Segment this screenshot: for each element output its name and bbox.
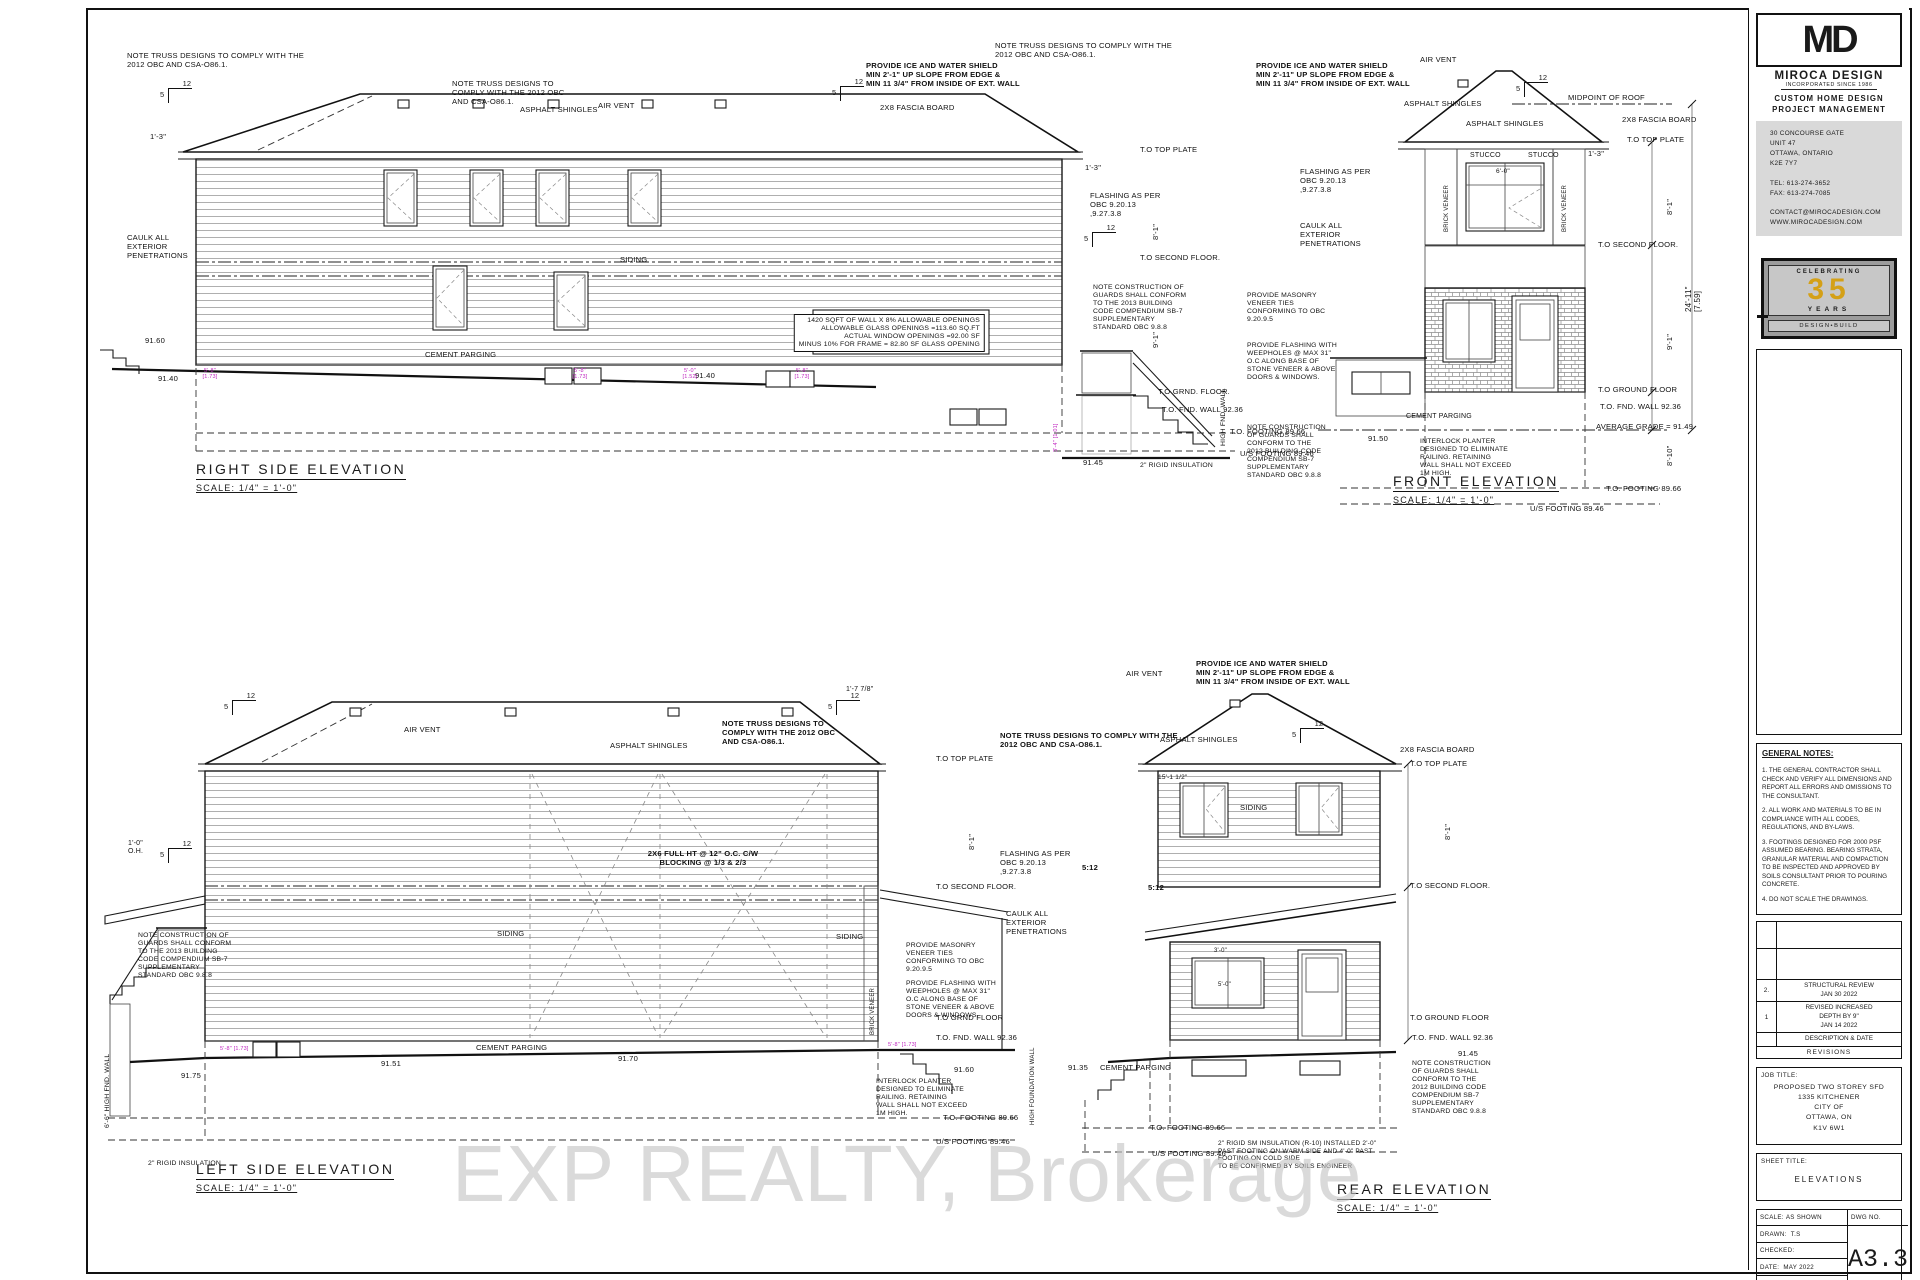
annotation-text: 91.35	[1068, 1064, 1088, 1073]
roof-slope-mark: 125	[840, 86, 864, 103]
annotation-text: T.O. FND. WALL 92.36	[936, 1034, 1017, 1043]
annotation-text: ASPHALT SHINGLES	[520, 106, 598, 115]
exp-realty-watermark: EXP REALTY, Brokerage	[452, 1128, 1362, 1220]
annotation-text: 91.70	[618, 1055, 638, 1064]
annotation-text: NOTE TRUSS DESIGNS TO COMPLY WITH THE 20…	[722, 720, 835, 747]
annotation-text: 5'-8" [1.73]	[888, 1042, 917, 1048]
annotation-text: CEMENT PARGING	[476, 1044, 547, 1053]
list-line: OTTAWA, ON	[1761, 1113, 1897, 1123]
company-address: 30 CONCOURSE GATEUNIT 47OTTAWA, ONTARIOK…	[1756, 121, 1902, 236]
annotation-text: 9'-1"	[1152, 332, 1161, 348]
annotation-text: SIDING	[836, 933, 863, 942]
annotation-text: 8'-1"	[968, 834, 977, 850]
slope-rise: 5	[224, 702, 228, 711]
list-line	[1770, 198, 1898, 208]
annotation-text: 91.50	[1368, 435, 1388, 444]
annotation-text: T.O SECOND FLOOR.	[1410, 882, 1490, 891]
slope-run: 12	[1315, 719, 1323, 728]
annotation-text: NOTE CONSTRUCTION OF GUARDS SHALL CONFOR…	[1412, 1060, 1491, 1116]
revision-number: 1	[1757, 1002, 1777, 1032]
annotation-text: NOTE TRUSS DESIGNS TO COMPLY WITH THE 20…	[1000, 732, 1178, 750]
slope-rise: 5	[1292, 730, 1296, 739]
list-line: WWW.MIROCADESIGN.COM	[1770, 218, 1898, 228]
annotation-text: CEMENT PARGING	[1406, 413, 1472, 421]
annotation-text: 91.40	[158, 375, 178, 384]
service-line: PROJECT MANAGEMENT	[1749, 105, 1909, 116]
annotation-text: T.O GRND FLOOR	[936, 1014, 1003, 1023]
slope-run: 12	[1539, 73, 1547, 82]
annotation-text: PROVIDE ICE AND WATER SHIELD MIN 2'-1" U…	[866, 62, 1020, 89]
drawing-scale: SCALE: 1/4" = 1'-0"	[196, 483, 406, 493]
annotation-text: 1'-3"	[1085, 164, 1101, 173]
annotation-text: 9'-1"	[1666, 334, 1675, 350]
annotation-text: PROVIDE FLASHING WITH WEEPHOLES @ MAX 31…	[1247, 342, 1337, 382]
annotation-text: NOTE CONSTRUCTION OF GUARDS SHALL CONFOR…	[138, 932, 231, 980]
annotation-text: NOTE CONSTRUCTION OF GUARDS SHALL CONFOR…	[1093, 284, 1186, 332]
annotation-text: T.O TOP PLATE	[1627, 136, 1684, 145]
title-block: MD MIROCA DESIGN INCORPORATED SINCE 1986…	[1748, 8, 1909, 1270]
annotation-text: 15'-1 1/2"	[1158, 774, 1187, 782]
drawing-scale: SCALE: 1/4" = 1'-0"	[196, 1183, 394, 1193]
annotation-text: 3'-4" [1.01]	[1053, 423, 1059, 452]
revision-desc-date-label: DESCRIPTION & DATE	[1777, 1033, 1901, 1046]
drawing-sheet: EXP REALTY, Brokerage NOTE TRUSS DESIGNS…	[0, 0, 1920, 1280]
annotation-text: 3'-0"	[1214, 948, 1227, 955]
annotation-text: 8'-1"	[1152, 224, 1161, 240]
annotation-text: 1'-3"	[1588, 150, 1604, 159]
list-line	[1770, 169, 1898, 179]
annotation-text: AIR VENT	[404, 726, 441, 735]
slope-rise: 5	[1516, 84, 1520, 93]
title-right-side-elevation: RIGHT SIDE ELEVATION SCALE: 1/4" = 1'-0"	[196, 461, 406, 493]
annotation-text: SIDING	[497, 930, 524, 939]
annotation-text: T.O. FND. WALL 92.36	[1162, 406, 1243, 415]
annotation-text: 8'-10"	[1666, 445, 1675, 466]
annotation-text: NOTE TRUSS DESIGNS TO COMPLY WITH THE 20…	[995, 42, 1172, 60]
revision-row: 1 REVISED INCREASED DEPTH BY 9" JAN 14 2…	[1757, 1002, 1901, 1033]
annotation-text: FLASHING AS PER OBC 9.20.13 ,9.27.3.8	[1090, 192, 1161, 219]
annotation-text: 91.40	[695, 372, 715, 381]
annotation-text: BRICK VENEER	[1562, 185, 1569, 232]
roof-slope-mark: 125	[232, 700, 256, 717]
annotation-text: 1'-0" O.H.	[128, 840, 143, 857]
annotation-text: T.O. FND. WALL 92.36	[1412, 1034, 1493, 1043]
annotation-text: 91.60	[145, 337, 165, 346]
annotation-text: CAULK ALL EXTERIOR PENETRATIONS	[127, 234, 188, 261]
annotation-text: 5'-0" [1.52]	[683, 368, 698, 381]
revision-header-row: DESCRIPTION & DATE	[1757, 1033, 1901, 1047]
sheet-title-label: SHEET TITLE:	[1761, 1158, 1897, 1165]
annotation-text: T.O SECOND FLOOR.	[1140, 254, 1220, 263]
title-left-side-elevation: LEFT SIDE ELEVATION SCALE: 1/4" = 1'-0"	[196, 1161, 394, 1193]
sheet-title-value: ELEVATIONS	[1761, 1175, 1897, 1184]
annotation-text: SIDING	[1240, 804, 1267, 813]
list-line: TEL: 613-274-3652	[1770, 179, 1898, 189]
title-front-elevation: FRONT ELEVATION SCALE: 1/4" = 1'-0"	[1393, 473, 1559, 505]
roof-slope-mark: 125	[1092, 232, 1116, 249]
annotation-text: 2X8 FASCIA BOARD	[1400, 746, 1475, 755]
slope-run: 12	[1107, 223, 1115, 232]
date-value: MAY 2022	[1783, 1264, 1814, 1271]
slope-run: 12	[183, 839, 191, 848]
annotation-text: T.O TOP PLATE	[936, 755, 993, 764]
annotation-text: 91.75	[181, 1072, 201, 1081]
roof-slope-mark: 125	[1524, 82, 1548, 99]
job-title-lines: PROPOSED TWO STOREY SFD1335 KITCHENERCIT…	[1761, 1083, 1897, 1134]
annotation-text: T.O TOP PLATE	[1140, 146, 1197, 155]
annotation-text: 1'-3"	[150, 133, 166, 142]
annotation-text: HIGH FOUNDATION WALL	[1030, 1047, 1037, 1125]
annotation-text: 8'-1"	[1666, 199, 1675, 215]
annotation-text: AVERAGE GRADE = 91.49	[1596, 423, 1693, 432]
revision-row: 2. STRUCTURAL REVIEW JAN 30 2022	[1757, 980, 1901, 1002]
annotation-text: T.O SECOND FLOOR.	[1598, 241, 1678, 250]
annotation-text: 24'-11" [7.59]	[1684, 286, 1703, 312]
annotation-text: PROVIDE MASONRY VENEER TIES CONFORMING T…	[1247, 292, 1325, 324]
slope-run: 12	[855, 77, 863, 86]
slope-rise: 5	[160, 850, 164, 859]
annotation-text: T.O SECOND FLOOR.	[936, 883, 1016, 892]
annotation-text: 91.45	[1458, 1050, 1478, 1059]
annotation-text: NOTE TRUSS DESIGNS TO COMPLY WITH THE 20…	[452, 80, 564, 107]
list-line: UNIT 47	[1770, 139, 1898, 149]
annotation-text: ASPHALT SHINGLES	[1160, 736, 1238, 745]
revision-row-empty	[1757, 949, 1901, 980]
annotation-text: 2X8 FASCIA BOARD	[1622, 116, 1697, 125]
drawing-scale: SCALE: 1/4" = 1'-0"	[1393, 495, 1559, 505]
annotation-text: BRICK VENEER	[1444, 185, 1451, 232]
roof-slope-mark: 125	[1300, 728, 1324, 745]
roof-slope-mark: 125	[168, 88, 192, 105]
annotation-text: 91.51	[381, 1060, 401, 1069]
annotation-text: T.O. FOOTING 89.66	[943, 1114, 1018, 1123]
company-services: CUSTOM HOME DESIGN PROJECT MANAGEMENT	[1749, 94, 1909, 115]
drawn-label: DRAWN:	[1760, 1231, 1787, 1238]
roof-slope-mark: 125	[168, 848, 192, 865]
annotation-text: 5'-8" [1.73]	[203, 368, 218, 381]
annotation-text: 6'-6" HIGH FND. WALL	[104, 1054, 112, 1128]
drawn-value: T.S	[1791, 1231, 1801, 1238]
date-cell: DATE: MAY 2022	[1757, 1259, 1847, 1276]
annotation-text: AIR VENT	[1126, 670, 1163, 679]
annotation-text: CEMENT PARGING	[425, 351, 496, 360]
list-line: 1335 KITCHENER	[1761, 1093, 1897, 1103]
list-line: 30 CONCOURSE GATE	[1770, 129, 1898, 139]
annotation-text: ASPHALT SHINGLES	[1466, 120, 1544, 129]
annotation-text: 5:12	[1148, 884, 1164, 893]
annotation-text: 2" RIGID INSULATION	[1140, 462, 1213, 470]
date-label: DATE:	[1760, 1264, 1779, 1271]
revision-number: 2.	[1757, 980, 1777, 1001]
badge-design-build: DESIGN•BUILD	[1768, 320, 1890, 332]
general-notes-list: 1. THE GENERAL CONTRACTOR SHALL CHECK AN…	[1762, 767, 1897, 904]
annotation-text: AIR VENT	[598, 102, 635, 111]
checked-cell: CHECKED:	[1757, 1243, 1847, 1260]
revisions-table: 2. STRUCTURAL REVIEW JAN 30 2022 1 REVIS…	[1756, 921, 1902, 1059]
annotation-layer: NOTE TRUSS DESIGNS TO COMPLY WITH THE 20…	[0, 0, 1920, 1280]
annotation-text: STUCCO	[1470, 152, 1501, 160]
sheet-title-box: SHEET TITLE: ELEVATIONS	[1756, 1153, 1902, 1201]
annotation-text: 5:12	[1082, 864, 1098, 873]
annotation-text: CAULK ALL EXTERIOR PENETRATIONS	[1006, 910, 1067, 937]
annotation-text: HIGH FND. WALL	[1220, 388, 1228, 446]
annotation-text: BRICK VENEER	[870, 988, 877, 1035]
annotation-text: PROVIDE MASONRY VENEER TIES CONFORMING T…	[906, 942, 984, 974]
list-line: 4. DO NOT SCALE THE DRAWINGS.	[1762, 896, 1897, 905]
annotation-text: STUCCO	[1528, 152, 1559, 160]
list-line: 2. ALL WORK AND MATERIALS TO BE IN COMPL…	[1762, 807, 1897, 833]
annotation-text: U/S FOOTING 89.46	[1530, 505, 1604, 514]
scale-label: SCALE:	[1760, 1214, 1784, 1221]
annotation-text: 1420 SQFT OF WALL X 8% ALLOWABLE OPENING…	[794, 314, 985, 352]
badge-inner: CELEBRATING 35 YEARS	[1768, 265, 1890, 316]
print-date-cell: PRINT DATE:	[1757, 1276, 1847, 1280]
list-line: CONTACT@MIROCADESIGN.COM	[1770, 208, 1898, 218]
annotation-text: 91.60	[954, 1066, 974, 1075]
slope-rise: 5	[1084, 234, 1088, 243]
dwg-no-label: DWG NO.	[1847, 1210, 1908, 1227]
revision-desc: STRUCTURAL REVIEW JAN 30 2022	[1777, 980, 1901, 1001]
annotation-text: NOTE TRUSS DESIGNS TO COMPLY WITH THE 20…	[127, 52, 304, 70]
job-title-label: JOB TITLE:	[1761, 1072, 1897, 1079]
slope-rise: 5	[160, 90, 164, 99]
annotation-text: CAULK ALL EXTERIOR PENETRATIONS	[1300, 222, 1361, 249]
annotation-text: PROVIDE ICE AND WATER SHIELD MIN 2'-11" …	[1196, 660, 1350, 687]
service-line: CUSTOM HOME DESIGN	[1749, 94, 1909, 105]
sheet-number: A3.3	[1847, 1226, 1908, 1280]
badge-years-number: 35	[1769, 275, 1889, 305]
slope-rise: 5	[828, 702, 832, 711]
anniversary-badge: CELEBRATING 35 YEARS DESIGN•BUILD	[1761, 258, 1897, 339]
slope-run: 12	[247, 691, 255, 700]
annotation-text: 6'-0"	[1496, 168, 1510, 176]
key-plan-box	[1756, 349, 1902, 735]
annotation-text: 8'-1"	[1444, 824, 1453, 840]
annotation-text: 91.45	[1083, 459, 1103, 468]
list-line: 3. FOOTINGS DESIGNED FOR 2000 PSF ASSUME…	[1762, 839, 1897, 890]
badge-years: YEARS	[1769, 306, 1889, 313]
list-line: 1. THE GENERAL CONTRACTOR SHALL CHECK AN…	[1762, 767, 1897, 801]
annotation-text: NOTE CONSTRUCTION OF GUARDS SHALL CONFOR…	[1247, 424, 1326, 480]
job-title-box: JOB TITLE: PROPOSED TWO STOREY SFD1335 K…	[1756, 1067, 1902, 1145]
annotation-text: PROVIDE ICE AND WATER SHIELD MIN 2'-11" …	[1256, 62, 1410, 89]
list-line: K1V 6W1	[1761, 1124, 1897, 1134]
slope-run: 12	[851, 691, 859, 700]
annotation-text: 5'-8" [1.73]	[795, 368, 810, 381]
drawing-title: FRONT ELEVATION	[1393, 473, 1559, 492]
list-line: OTTAWA, ONTARIO	[1770, 149, 1898, 159]
list-line: K2E 7Y7	[1770, 159, 1898, 169]
slope-rise: 5	[832, 88, 836, 97]
revision-desc: REVISED INCREASED DEPTH BY 9" JAN 14 202…	[1777, 1002, 1901, 1032]
annotation-text: 5'-8" [1.73]	[573, 368, 588, 381]
drawing-title: RIGHT SIDE ELEVATION	[196, 461, 406, 480]
annotation-text: FLASHING AS PER OBC 9.20.13 ,9.27.3.8	[1300, 168, 1371, 195]
slope-run: 12	[183, 79, 191, 88]
drawing-title: LEFT SIDE ELEVATION	[196, 1161, 394, 1180]
badge-cross-icon	[1757, 311, 1768, 322]
md-logo-icon: MD	[1802, 19, 1855, 62]
annotation-text: ASPHALT SHINGLES	[610, 742, 688, 751]
company-incorporated: INCORPORATED SINCE 1986	[1781, 82, 1877, 90]
roof-slope-mark: 125	[836, 700, 860, 717]
annotation-text: 2X6 FULL HT @ 12" O.C. C/W BLOCKING @ 1/…	[648, 850, 759, 868]
annotation-text: AIR VENT	[1420, 56, 1457, 65]
scale-cell: SCALE: AS SHOWN	[1757, 1210, 1847, 1227]
revision-row-empty	[1757, 922, 1901, 949]
company-name: MIROCA DESIGN	[1749, 70, 1909, 82]
annotation-text: 2X8 FASCIA BOARD	[880, 104, 955, 113]
company-logo: MD	[1756, 13, 1902, 67]
revisions-footer: REVISIONS	[1757, 1047, 1901, 1058]
annotation-text: FLASHING AS PER OBC 9.20.13 ,9.27.3.8	[1000, 850, 1071, 877]
list-line: PROPOSED TWO STOREY SFD	[1761, 1083, 1897, 1093]
annotation-text: SIDING	[620, 256, 647, 265]
sheet-info-grid: SCALE: AS SHOWN DWG NO. DRAWN: T.S A3.3 …	[1756, 1209, 1902, 1280]
annotation-text: 5'-8" [1.73]	[220, 1046, 249, 1052]
general-notes: GENERAL NOTES: 1. THE GENERAL CONTRACTOR…	[1756, 743, 1902, 915]
annotation-text: 5'-0"	[1218, 982, 1231, 989]
annotation-text: T.O GROUND FLOOR	[1598, 386, 1677, 395]
annotation-text: T.O. FND. WALL 92.36	[1600, 403, 1681, 412]
drawn-cell: DRAWN: T.S	[1757, 1226, 1847, 1243]
annotation-text: T.O TOP PLATE	[1410, 760, 1467, 769]
annotation-text: ASPHALT SHINGLES	[1404, 100, 1482, 109]
annotation-text: CEMENT PARGING	[1100, 1064, 1171, 1073]
list-line: CITY OF	[1761, 1103, 1897, 1113]
annotation-text: MIDPOINT OF ROOF	[1568, 94, 1645, 103]
list-line: FAX: 613-274-7085	[1770, 189, 1898, 199]
annotation-text: T.O GROUND FLOOR	[1410, 1014, 1489, 1023]
general-notes-title: GENERAL NOTES:	[1762, 749, 1897, 760]
annotation-text: T.O. FOOTING 89.66	[1606, 485, 1681, 494]
scale-value: AS SHOWN	[1786, 1214, 1822, 1221]
